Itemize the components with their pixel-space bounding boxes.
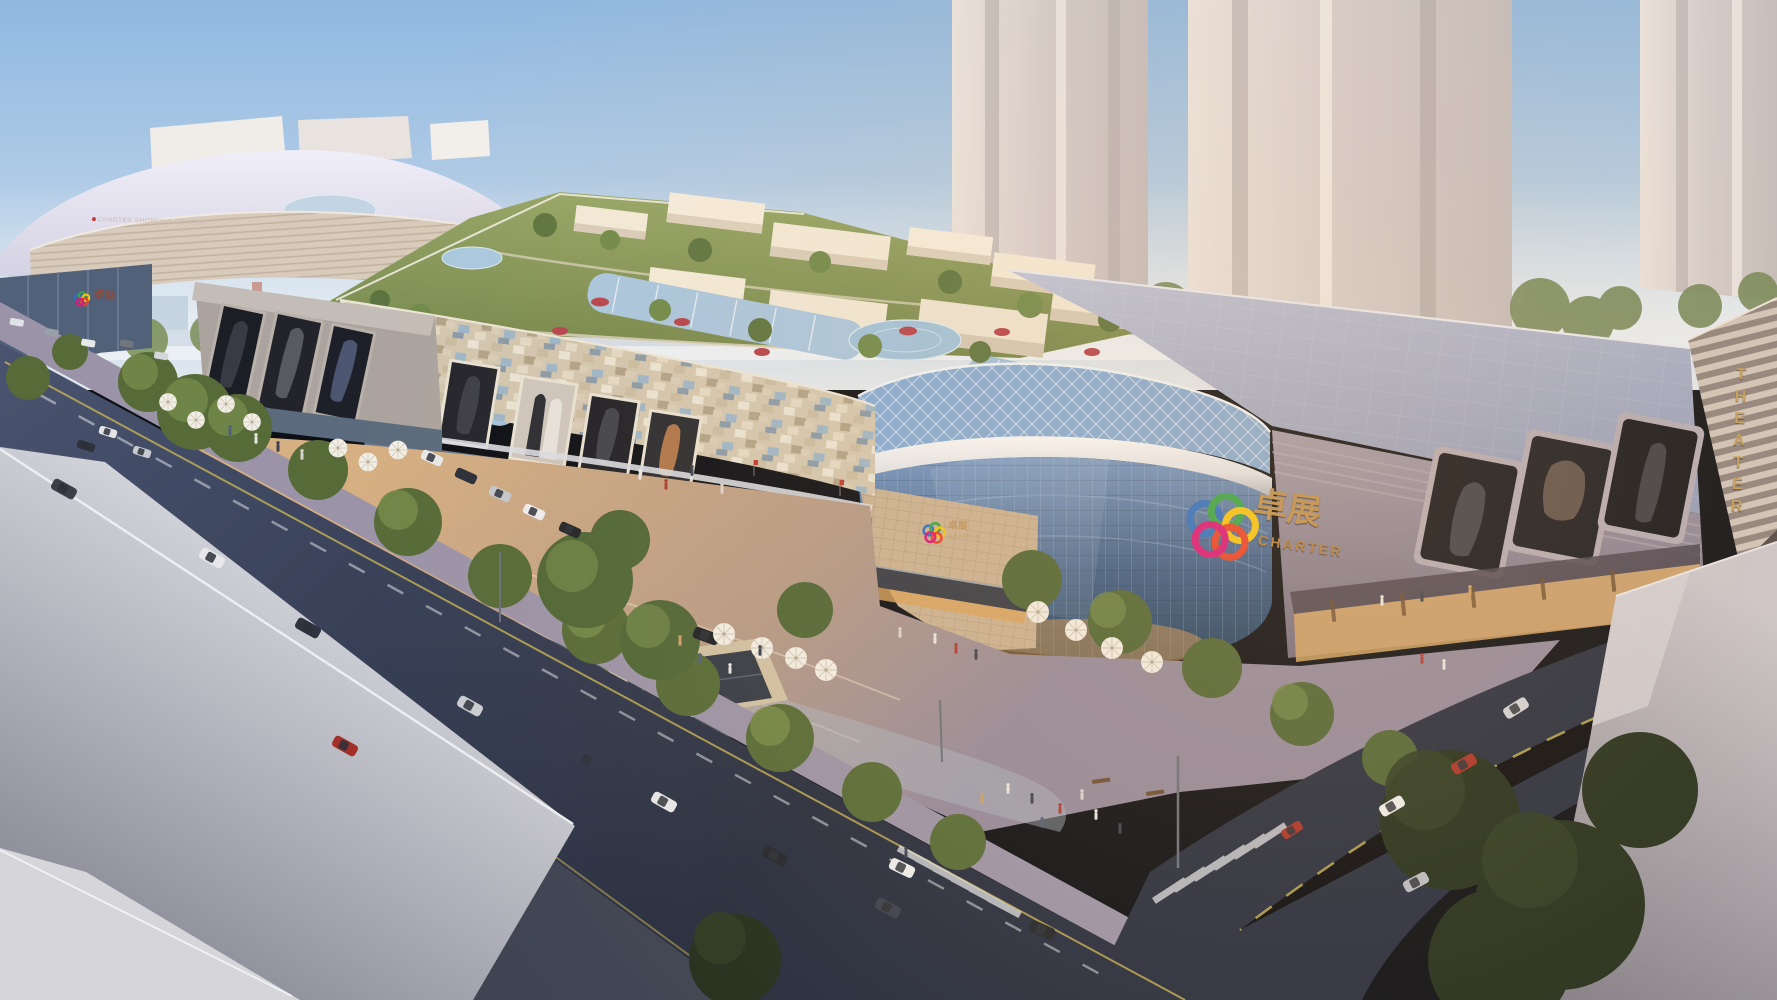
left-building-logo-mark [92, 217, 96, 221]
sunlight-wash [0, 0, 1777, 1000]
entrance-logo-chinese: 卓展 [947, 521, 967, 532]
atrium-logo-chinese: 卓展 [1251, 487, 1323, 530]
rendering-canvas [0, 0, 1777, 1000]
left-entrance-logo-text: 卓展 [93, 290, 116, 302]
architectural-rendering: CHARTER SHOPPING CENTER 卓展 卓展 CHARTER 卓展… [0, 0, 1777, 1000]
